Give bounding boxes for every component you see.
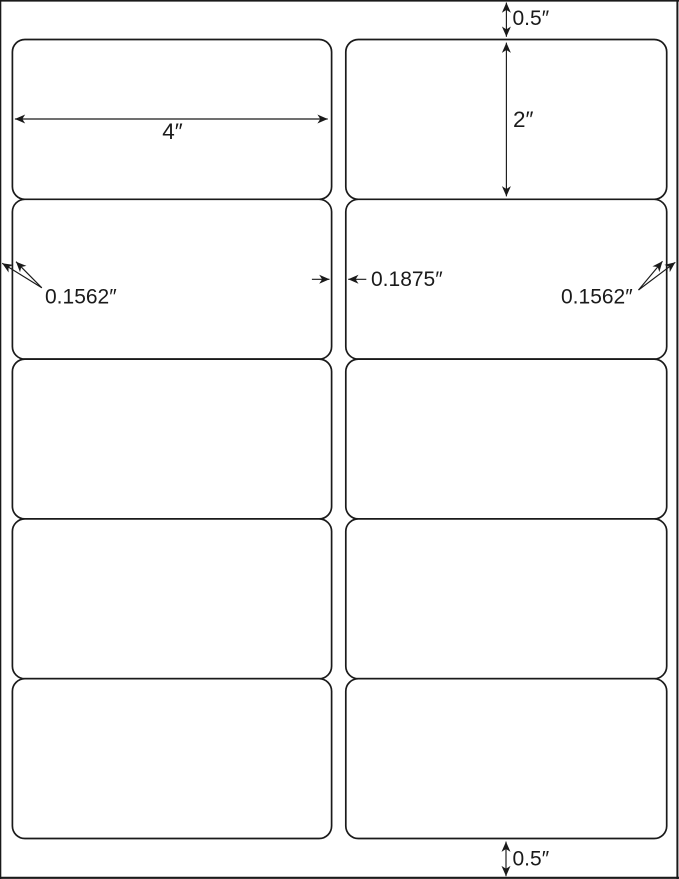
svg-text:0.1562″: 0.1562″: [561, 285, 633, 308]
svg-text:0.5″: 0.5″: [513, 848, 550, 871]
svg-text:4″: 4″: [162, 119, 183, 144]
svg-text:2″: 2″: [513, 107, 534, 132]
svg-text:0.1875″: 0.1875″: [371, 268, 443, 291]
svg-text:0.1562″: 0.1562″: [45, 286, 117, 309]
svg-text:0.5″: 0.5″: [513, 7, 550, 30]
